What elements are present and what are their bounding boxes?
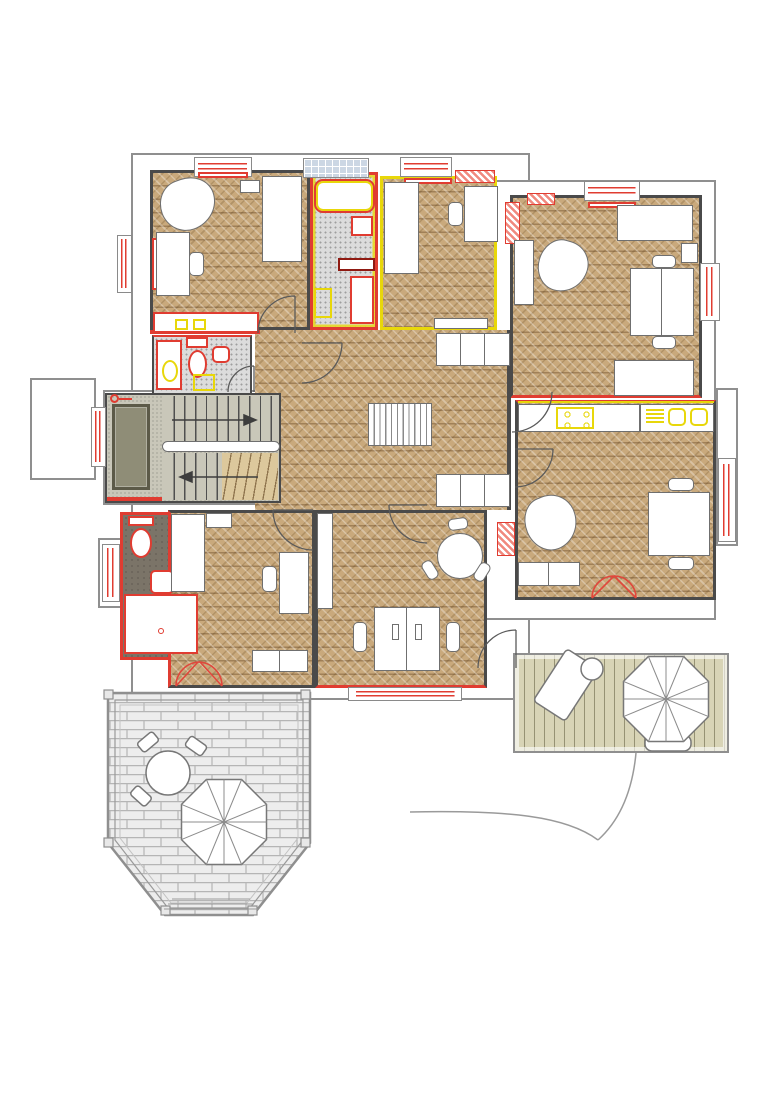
chair <box>668 478 694 491</box>
hand-basin <box>212 346 230 363</box>
side-box <box>681 243 698 263</box>
stair-flight-down <box>164 453 222 500</box>
chimney-icon <box>527 193 555 205</box>
wardrobe <box>317 513 333 609</box>
marked-threshold <box>107 497 162 501</box>
radiator-icon <box>198 172 248 178</box>
chimney-icon <box>497 522 515 556</box>
sink-basin <box>668 408 686 426</box>
low-cabinets <box>518 562 580 586</box>
washer-drum <box>162 360 178 382</box>
window-icon <box>348 687 462 701</box>
marked-counter <box>153 312 259 333</box>
appliance <box>314 288 332 318</box>
dark-red-shelf <box>338 258 375 271</box>
low-cabinets <box>252 650 308 672</box>
tall-cabinet <box>514 240 534 305</box>
shower-drain <box>158 628 164 634</box>
chimney-icon <box>455 170 495 183</box>
key-symbol-stem <box>119 398 132 400</box>
stair-winders <box>222 453 278 500</box>
sink-basin <box>690 408 708 426</box>
doormat-rug <box>112 404 150 490</box>
window-icon <box>718 458 736 542</box>
floor-plan-canvas <box>0 0 780 1116</box>
wall-sink <box>351 216 373 236</box>
handrail <box>162 441 280 452</box>
shelf <box>206 513 232 528</box>
key-symbol-icon <box>110 394 119 403</box>
desk <box>279 552 309 614</box>
toilet-cistern <box>128 516 154 526</box>
wardrobe <box>436 474 510 507</box>
window-icon <box>117 235 132 293</box>
counter-box <box>193 319 206 330</box>
window-icon <box>400 157 452 177</box>
double-desk <box>374 607 440 671</box>
desk-chair <box>353 622 367 652</box>
bed <box>384 182 419 274</box>
desk <box>156 232 190 296</box>
bed <box>614 360 694 396</box>
bathtub <box>314 179 375 213</box>
stair-flight-up <box>164 396 278 442</box>
garden-path <box>410 753 636 840</box>
kitchen-wall-yellow-line <box>518 401 714 403</box>
glass-block-window-icon <box>303 158 369 178</box>
deck-se <box>513 653 729 753</box>
vanity-counter <box>350 276 374 324</box>
wardrobe <box>436 333 510 366</box>
monitor-icon <box>415 624 422 640</box>
balcony-west <box>30 378 96 480</box>
toilet-cistern <box>186 337 208 348</box>
desk-chair <box>446 622 460 652</box>
low-shelf <box>434 318 488 329</box>
radiator-freestanding <box>368 403 432 446</box>
counter-box <box>175 319 188 330</box>
dining-table <box>648 492 710 556</box>
sofa <box>617 205 693 241</box>
shower-tray <box>124 594 198 654</box>
floor-box <box>193 374 215 391</box>
double-desk <box>630 268 694 336</box>
chair <box>668 557 694 570</box>
desk-chair <box>262 566 277 592</box>
desk-chair <box>448 202 463 226</box>
toilet-icon <box>130 528 152 558</box>
washing-machine <box>156 340 182 390</box>
bed <box>171 514 205 592</box>
desk-chair <box>652 255 676 268</box>
window-icon <box>584 181 640 201</box>
monitor-icon <box>392 624 399 640</box>
window-icon <box>91 407 106 467</box>
bed <box>262 176 302 262</box>
parasol-icon <box>182 780 267 865</box>
window-icon <box>102 544 120 602</box>
desk-chair <box>652 336 676 349</box>
shelf <box>240 180 260 193</box>
chimney-icon <box>505 202 520 244</box>
desk <box>464 186 498 242</box>
terrace-sw <box>104 690 310 915</box>
cooktop-icon <box>556 407 594 429</box>
vent-icon <box>646 409 664 424</box>
window-icon <box>700 263 720 321</box>
desk-chair <box>189 252 204 276</box>
